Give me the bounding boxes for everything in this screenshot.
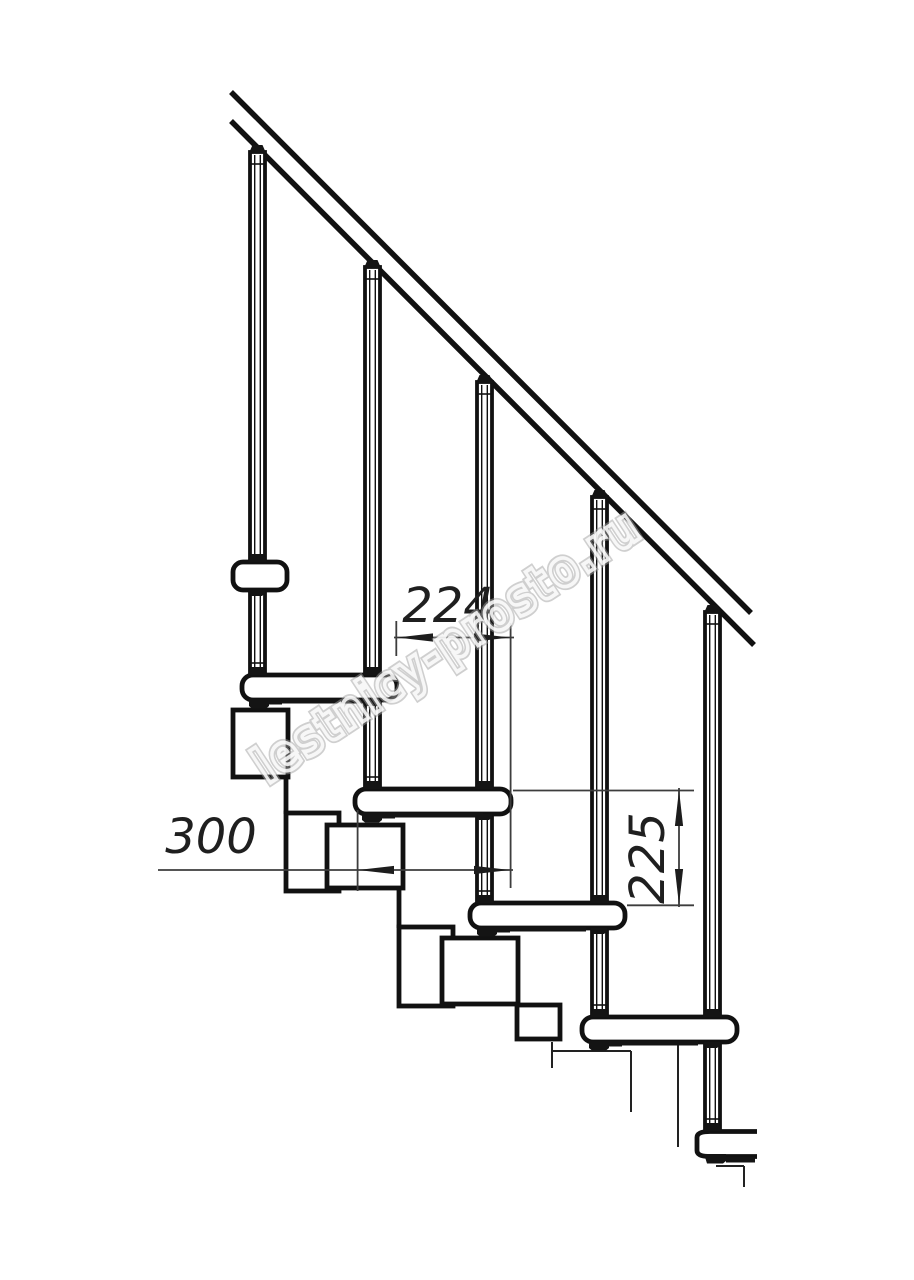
support-box-3 <box>442 938 518 1004</box>
tread-top-partial <box>233 562 287 590</box>
tread-3 <box>470 903 625 928</box>
baluster-tube <box>250 152 265 675</box>
tread-saddle <box>704 1154 726 1164</box>
tread-2 <box>355 789 511 814</box>
tread-saddle-step <box>382 813 395 819</box>
arrowhead-down-icon <box>675 869 683 905</box>
support-box-2 <box>327 825 403 888</box>
dimension-value-300: 300 <box>165 809 257 865</box>
support-riser-3-cut <box>517 1005 560 1039</box>
tread-saddle-strip <box>510 927 586 932</box>
arrowhead-up-icon <box>675 790 683 826</box>
tread-saddle <box>249 699 269 709</box>
baluster-pass-nub <box>704 1042 720 1048</box>
baluster-top-connector <box>364 260 381 268</box>
tread-saddle <box>362 813 382 823</box>
tread-4 <box>582 1017 737 1042</box>
baluster-pass-nub <box>249 590 265 596</box>
watermark-text-core: lestnicy-prosto.ru <box>242 497 651 795</box>
tread-saddle-step <box>269 699 282 705</box>
tread-saddle-strip <box>622 1041 698 1046</box>
tread-saddle <box>477 927 497 937</box>
dimension-value-225: 225 <box>620 812 676 904</box>
baluster-top-connector <box>476 375 493 383</box>
baluster-top-connector <box>591 490 608 498</box>
tread-saddle <box>589 1041 609 1051</box>
baluster-top-connector <box>249 145 266 153</box>
tread-saddle-step <box>609 1041 622 1047</box>
tread-saddle-strip <box>395 813 483 818</box>
baluster-5 <box>705 612 720 1131</box>
baluster-pass-nub <box>591 928 607 934</box>
baluster-tube <box>705 612 720 1131</box>
watermark: lestnicy-prosto.ru lestnicy-prosto.ru <box>242 497 651 795</box>
tread-saddle-step <box>497 927 510 933</box>
baluster-1 <box>250 152 265 675</box>
tread-5-cut <box>697 1132 757 1157</box>
fittings <box>248 145 755 1164</box>
technical-drawing-canvas: 224 300 225 lestnicy-prosto.ru lestnicy-… <box>0 0 914 1280</box>
staircase-drawing: 224 300 225 lestnicy-prosto.ru lestnicy-… <box>0 0 914 1280</box>
tread-saddle-strip <box>726 1157 755 1163</box>
